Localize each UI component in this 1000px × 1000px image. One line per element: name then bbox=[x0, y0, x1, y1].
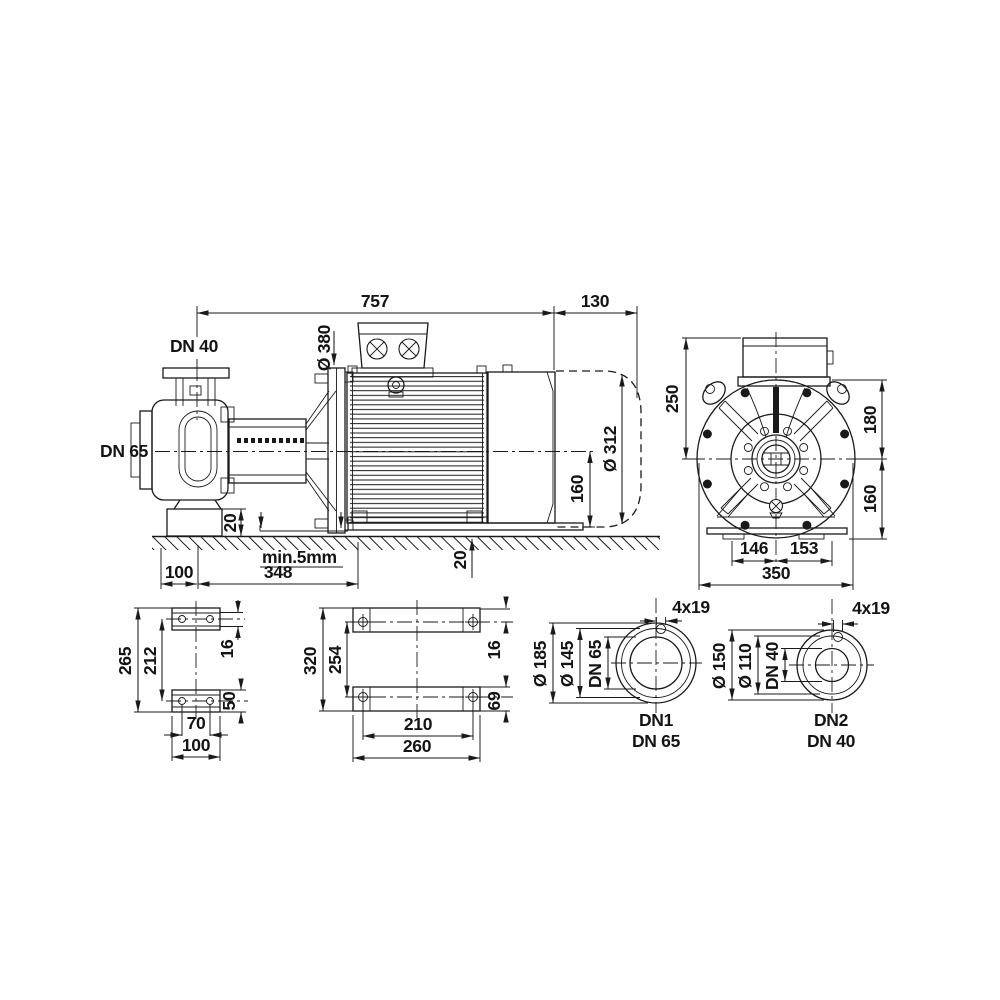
dim-width-146: 146 bbox=[740, 538, 769, 558]
dim-flange1-bore: DN 65 bbox=[585, 639, 605, 688]
dim-block-height-20: 20 bbox=[220, 513, 240, 532]
dim-foot-70: 70 bbox=[187, 713, 206, 733]
dim-shaft-height-160: 160 bbox=[567, 474, 587, 503]
bearing-frame bbox=[229, 419, 306, 483]
flange-dn2-view: 4x19 Ø 150 Ø 110 DN 40 DN2 DN 40 bbox=[709, 598, 890, 751]
dim-motor-dia-312: Ø 312 bbox=[600, 425, 620, 472]
lantern-braces bbox=[306, 391, 336, 511]
dim-fan-overhang: 130 bbox=[581, 291, 610, 311]
pump-foot bbox=[174, 500, 221, 509]
flange2-name: DN2 bbox=[814, 710, 849, 730]
foot-detail-view: 265 212 16 50 70 100 bbox=[115, 600, 248, 761]
pump-dimension-drawing: 757 130 DN 40 DN 65 Ø 380 Ø 312 160 20 m… bbox=[0, 0, 1000, 1000]
label-suction-dn40: DN 40 bbox=[170, 336, 219, 356]
side-view: 757 130 DN 40 DN 65 Ø 380 Ø 312 160 20 m… bbox=[100, 291, 660, 589]
baseplate-rail-top bbox=[353, 608, 480, 632]
dim-foot-50: 50 bbox=[219, 691, 239, 710]
top-rib bbox=[773, 387, 779, 433]
dim-foot-265: 265 bbox=[115, 646, 135, 675]
flange1-name: DN1 bbox=[639, 710, 674, 730]
dim-plate-16: 16 bbox=[484, 640, 504, 659]
dim-offset-100: 100 bbox=[165, 562, 194, 582]
ground-hatch bbox=[152, 537, 660, 550]
lifting-lug bbox=[822, 377, 853, 408]
dim-plate-320: 320 bbox=[300, 646, 320, 675]
baseplate bbox=[348, 523, 583, 530]
flange1-size: DN 65 bbox=[632, 731, 681, 751]
dim-flange1-od: Ø 185 bbox=[530, 640, 550, 687]
dim-foot-212: 212 bbox=[140, 646, 160, 675]
motor-feet-front bbox=[707, 528, 847, 534]
flange1-holes-label: 4x19 bbox=[672, 597, 710, 617]
front-view: 250 180 160 146 153 350 bbox=[662, 332, 887, 590]
dim-span-348: 348 bbox=[264, 562, 293, 582]
suction-flange bbox=[163, 368, 229, 378]
dim-plate-254: 254 bbox=[325, 645, 345, 674]
dim-foot-20: 20 bbox=[450, 550, 470, 569]
dim-height-250: 250 bbox=[662, 384, 682, 413]
dim-plate-210: 210 bbox=[404, 714, 433, 734]
flange-dn1-view: 4x19 Ø 185 Ø 145 DN 65 DN1 DN 65 bbox=[530, 597, 710, 751]
flange2-holes-label: 4x19 bbox=[852, 598, 890, 618]
label-discharge-dn65: DN 65 bbox=[100, 441, 149, 461]
dim-overall-length: 757 bbox=[361, 291, 389, 311]
dim-flange-dia-380: Ø 380 bbox=[314, 324, 334, 371]
dim-flange2-bc: Ø 110 bbox=[735, 643, 755, 689]
dim-width-350: 350 bbox=[762, 563, 791, 583]
foundation-block bbox=[167, 509, 222, 536]
dim-height-180: 180 bbox=[860, 405, 880, 434]
dim-plate-69: 69 bbox=[484, 691, 504, 710]
flange2-size: DN 40 bbox=[807, 731, 856, 751]
dim-flange2-od: Ø 150 bbox=[709, 642, 729, 689]
baseplate-detail-view: 320 254 16 69 210 260 bbox=[300, 599, 513, 762]
dim-foot-100: 100 bbox=[182, 735, 211, 755]
motor-fins bbox=[350, 376, 484, 523]
dim-flange2-bore: DN 40 bbox=[762, 641, 782, 690]
terminal-box-front bbox=[743, 338, 827, 377]
pump-dimension-drawing-page: 757 130 DN 40 DN 65 Ø 380 Ø 312 160 20 m… bbox=[0, 0, 1000, 1000]
lifting-lug bbox=[698, 377, 729, 408]
dim-foot-16: 16 bbox=[217, 639, 237, 658]
rear-housing bbox=[487, 372, 555, 523]
baseplate-rail-bottom bbox=[353, 687, 480, 711]
dim-width-153: 153 bbox=[790, 538, 819, 558]
dim-plate-260: 260 bbox=[403, 736, 432, 756]
dim-height-160-front: 160 bbox=[860, 484, 880, 513]
dim-flange1-bc: Ø 145 bbox=[557, 640, 577, 687]
